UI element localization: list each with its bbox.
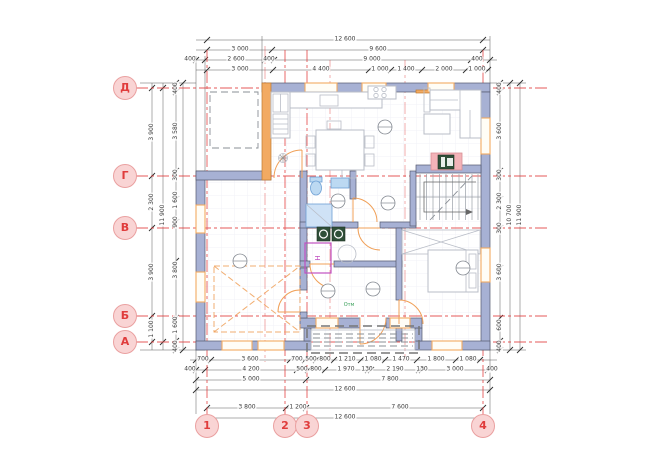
dim-label: 3 580 (173, 121, 179, 140)
dim-label: 1 080 (363, 357, 382, 363)
dim-label: 1 600 (173, 315, 179, 334)
axis-marker-row: Г (113, 164, 137, 188)
dim-label: 9 000 (362, 57, 381, 63)
dim-label: 7 800 (380, 377, 399, 383)
dim-label: 1 000 (467, 67, 486, 73)
dim-label: 2 000 (434, 67, 453, 73)
dim-label: 7 600 (390, 405, 409, 411)
dim-label: 700 (290, 357, 303, 363)
dim-label: 11 900 (517, 204, 523, 227)
dim-label: 1 000 (370, 67, 389, 73)
dim-label: 3 900 (149, 122, 155, 141)
dim-label: 800 (309, 367, 322, 373)
dim-label: 1 100 (149, 319, 155, 338)
dim-label: 400 (485, 367, 498, 373)
dim-label: 1 400 (396, 67, 415, 73)
dim-label: 3 000 (230, 47, 249, 53)
room-tag (366, 282, 380, 296)
dim-label: 4 200 (241, 367, 260, 373)
heater-label: Н (314, 255, 322, 260)
dim-label: 3 600 (497, 262, 503, 281)
dim-label: 400 (470, 57, 483, 63)
sink-icon (331, 178, 349, 188)
dim-label: 300 (497, 168, 503, 181)
dim-label: 12 600 (334, 415, 357, 421)
bed-icon (428, 250, 478, 292)
axis-marker-col: 3 (295, 414, 319, 438)
elevation-label: Отм (344, 302, 355, 308)
dim-label: 3 600 (240, 357, 259, 363)
dim-label: 600 (497, 318, 503, 331)
dim-label: 400 (173, 81, 179, 94)
dim-label: 12 600 (334, 37, 357, 43)
axis-marker-row: А (113, 330, 137, 354)
lamp-icon (279, 154, 288, 163)
room-tag (233, 254, 247, 268)
dim-label: 1 600 (173, 190, 179, 209)
dim-label: 9 600 (368, 47, 387, 53)
dining-table-icon (306, 121, 374, 178)
dim-label: 3 000 (445, 367, 464, 373)
dim-label: 400 (262, 57, 275, 63)
coffee-table-icon (424, 114, 450, 134)
dim-label: 400 (497, 339, 503, 352)
dim-label: 1 970 (336, 367, 355, 373)
room-tag (381, 196, 395, 210)
dim-label: 300 (173, 168, 179, 181)
room-tag (456, 261, 470, 275)
axis-marker-col: 1 (195, 414, 219, 438)
dim-label: 800 (318, 357, 331, 363)
dim-label: 300 (497, 221, 503, 234)
dim-label: 1 470 (391, 357, 410, 363)
overhang-dashed-outline (210, 92, 258, 148)
fireplace-icon (431, 153, 462, 170)
axis-marker-row: Б (113, 304, 137, 328)
dim-label: 3 900 (149, 262, 155, 281)
dim-label: 3 800 (173, 260, 179, 279)
dim-label: 3 000 (230, 67, 249, 73)
dim-label: 400 (183, 367, 196, 373)
dim-label: 2 600 (226, 57, 245, 63)
dim-label: 130 (360, 367, 373, 373)
dim-label: 130 (415, 367, 428, 373)
dim-label: 1 080 (458, 357, 477, 363)
dim-label: 10 700 (507, 204, 513, 227)
room-tag (321, 284, 335, 298)
axis-marker-row: В (113, 216, 137, 240)
dim-label: 1 800 (426, 357, 445, 363)
dim-label: 2 300 (497, 191, 503, 210)
dim-label: 400 (183, 57, 196, 63)
dim-label: 4 400 (311, 67, 330, 73)
dim-label: 2 190 (385, 367, 404, 373)
axis-marker-row: Д (113, 76, 137, 100)
highlighted-wall (262, 83, 271, 180)
axis-marker-col: 4 (471, 414, 495, 438)
dim-label: 400 (173, 339, 179, 352)
axis-marker-col: 2 (273, 414, 297, 438)
dim-label: 1 210 (337, 357, 356, 363)
dim-label: 11 900 (160, 204, 166, 227)
room-tag (378, 120, 392, 134)
floor-plan-canvas: Д Г В Б А 1 2 3 4 12 600 3 000 9 600 400… (0, 0, 655, 463)
dim-label: 3 800 (237, 405, 256, 411)
dim-label: 500 (295, 367, 308, 373)
room-tag (331, 194, 345, 208)
dim-label: 1 200 (288, 405, 307, 411)
dim-label: 500 (304, 357, 317, 363)
dim-label: 12 600 (334, 387, 357, 393)
dim-label: 700 (196, 357, 209, 363)
dim-label: 900 (173, 215, 179, 228)
dim-label: 3 600 (497, 121, 503, 140)
dim-label: 5 000 (241, 377, 260, 383)
dim-label: 400 (497, 81, 503, 94)
dim-label: 2 300 (149, 192, 155, 211)
